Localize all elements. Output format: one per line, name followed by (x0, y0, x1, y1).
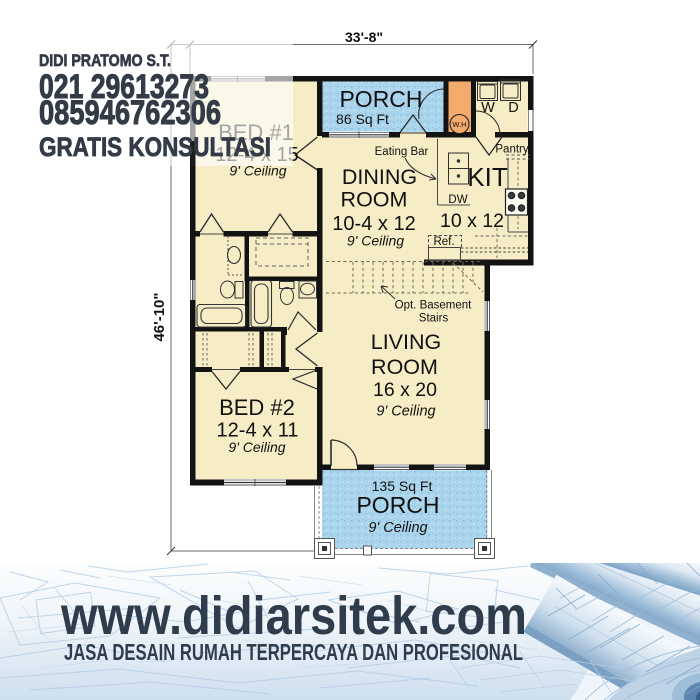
svg-text:ROOM: ROOM (341, 188, 408, 212)
svg-text:PORCH: PORCH (356, 492, 439, 518)
svg-text:BED #2: BED #2 (219, 395, 295, 420)
svg-text:ROOM: ROOM (371, 355, 438, 379)
svg-text:PORCH: PORCH (339, 86, 422, 112)
svg-text:085946762306: 085946762306 (39, 94, 221, 132)
svg-text:9' Ceiling: 9' Ceiling (368, 520, 427, 536)
svg-text:9' Ceiling: 9' Ceiling (228, 439, 285, 455)
svg-text:Stairs: Stairs (419, 313, 449, 325)
svg-text:DW: DW (448, 194, 467, 206)
svg-text:10 x 12: 10 x 12 (440, 210, 504, 232)
svg-text:JASA DESAIN RUMAH TERPERCAYA D: JASA DESAIN RUMAH TERPERCAYA DAN PROFESI… (64, 639, 523, 665)
svg-text:86 Sq Ft: 86 Sq Ft (336, 111, 389, 127)
svg-text:LIVING: LIVING (371, 330, 442, 354)
svg-text:www.didiarsitek.com: www.didiarsitek.com (60, 586, 527, 646)
svg-text:Eating Bar: Eating Bar (375, 146, 429, 158)
svg-text:D: D (508, 100, 518, 116)
svg-text:DINING: DINING (342, 165, 417, 189)
svg-text:GRATIS KONSULTASI: GRATIS KONSULTASI (39, 132, 271, 162)
svg-text:Opt. Basement: Opt. Basement (395, 300, 473, 312)
svg-text:46'-10": 46'-10" (151, 292, 168, 341)
svg-text:Ref.: Ref. (433, 236, 454, 248)
svg-text:W: W (481, 100, 495, 116)
svg-text:Pantry: Pantry (495, 144, 528, 156)
svg-text:9' Ceiling: 9' Ceiling (376, 404, 435, 420)
svg-text:16 x 20: 16 x 20 (373, 379, 437, 401)
svg-text:9' Ceiling: 9' Ceiling (347, 233, 404, 249)
svg-text:33'-8": 33'-8" (345, 29, 383, 45)
svg-text:KIT: KIT (467, 162, 508, 192)
svg-text:W.H: W.H (452, 120, 466, 129)
